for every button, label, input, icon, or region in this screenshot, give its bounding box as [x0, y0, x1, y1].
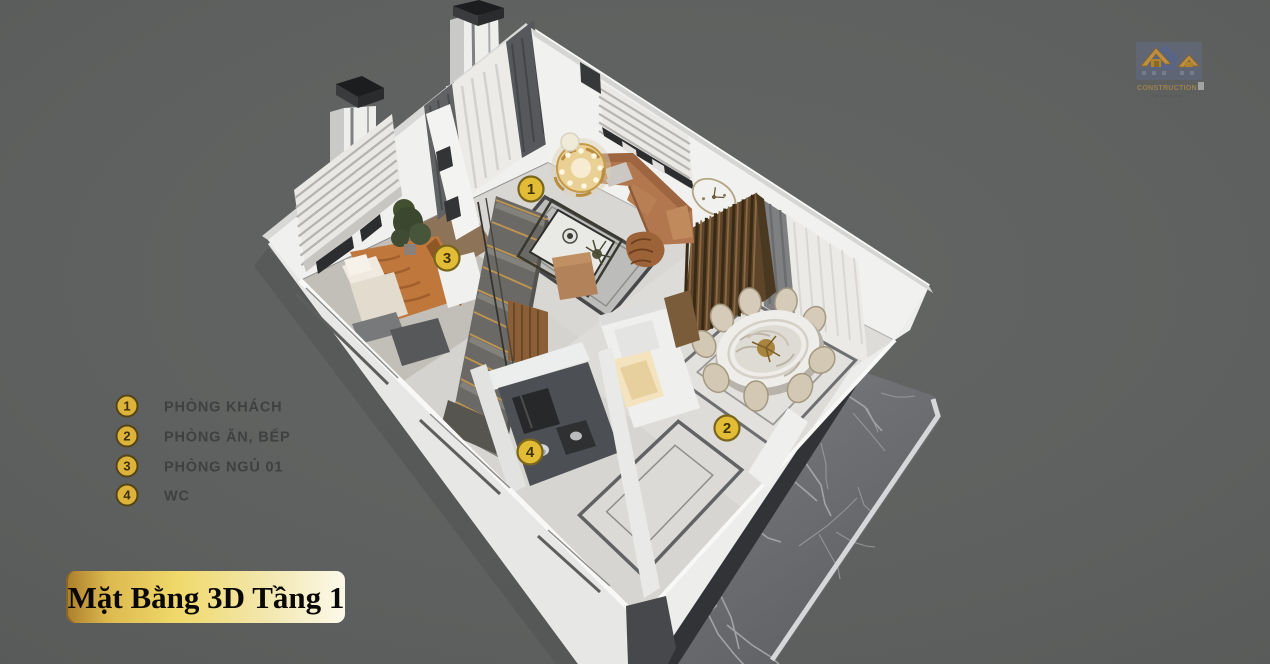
- svg-text:Mặt Bằng 3D Tầng 1: Mặt Bằng 3D Tầng 1: [68, 580, 345, 615]
- svg-text:PHÒNG NGỦ 01: PHÒNG NGỦ 01: [164, 458, 283, 476]
- svg-text:1: 1: [123, 399, 130, 414]
- svg-text:1: 1: [527, 181, 535, 198]
- svg-text:xay dung tron goi: xay dung tron goi: [1153, 93, 1184, 98]
- svg-text:PHÒNG ĂN, BẾP: PHÒNG ĂN, BẾP: [164, 428, 290, 446]
- svg-text:3: 3: [123, 459, 130, 474]
- svg-text:WC: WC: [164, 489, 190, 505]
- svg-text:PHÒNG KHÁCH: PHÒNG KHÁCH: [164, 398, 282, 416]
- svg-text:4: 4: [123, 488, 131, 503]
- svg-text:2: 2: [123, 429, 130, 444]
- svg-text:2: 2: [723, 420, 731, 437]
- svg-text:3: 3: [443, 250, 451, 267]
- svg-text:4: 4: [526, 444, 535, 461]
- svg-text:CONSTRUCTION: CONSTRUCTION: [1137, 85, 1197, 92]
